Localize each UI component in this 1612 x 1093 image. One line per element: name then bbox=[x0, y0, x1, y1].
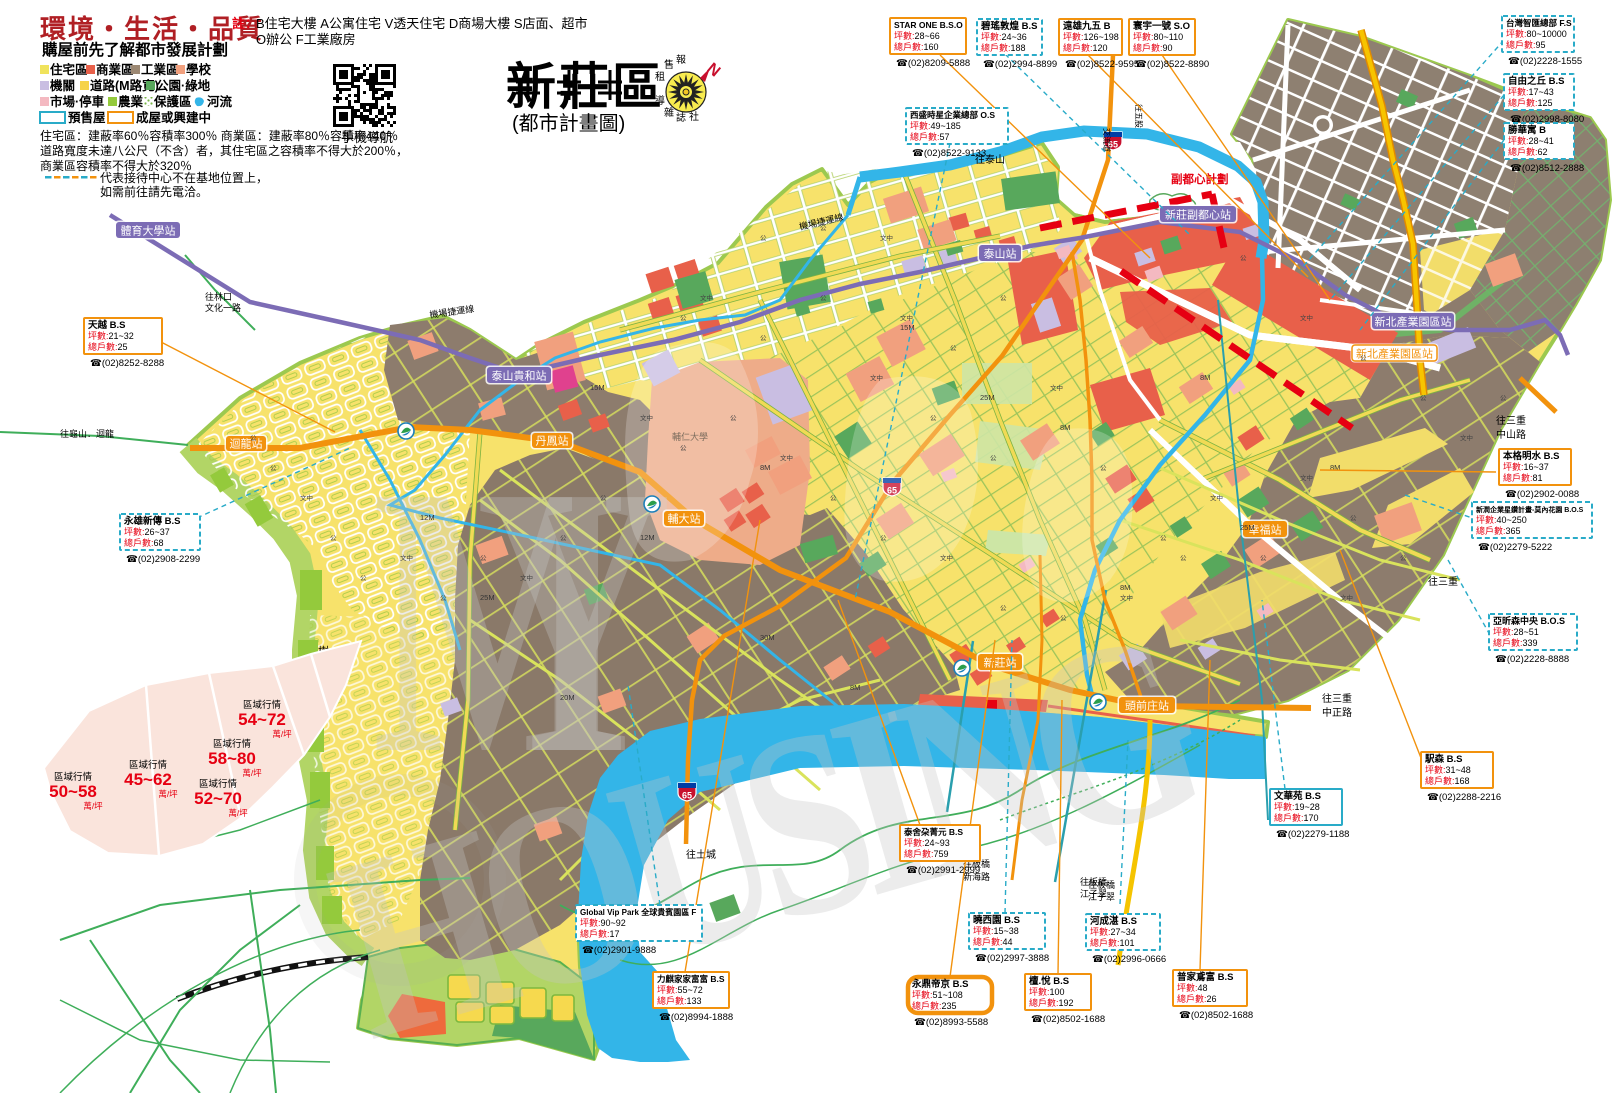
svg-text:25M: 25M bbox=[1240, 523, 1255, 532]
svg-text:萬/坪: 萬/坪 bbox=[242, 768, 262, 778]
svg-text:道路寬度未達八公尺（不含）者，其住宅區之容積率不得大於200: 道路寬度未達八公尺（不含）者，其住宅區之容積率不得大於200％， bbox=[40, 143, 408, 158]
svg-text:往三重: 往三重 bbox=[1322, 692, 1352, 705]
svg-text:公: 公 bbox=[1180, 555, 1187, 562]
svg-text:公: 公 bbox=[680, 445, 687, 452]
svg-text:文中: 文中 bbox=[1210, 493, 1223, 502]
svg-text:公: 公 bbox=[1240, 255, 1247, 262]
svg-text:公: 公 bbox=[1400, 555, 1407, 562]
svg-text:總戶數:125: 總戶數:125 bbox=[1508, 97, 1553, 108]
svg-text:總戶數:81: 總戶數:81 bbox=[1503, 472, 1543, 483]
svg-text:如需前往請先電洽。: 如需前往請先電洽。 bbox=[100, 184, 208, 199]
svg-text:公: 公 bbox=[360, 575, 367, 582]
svg-text:成屋或興建中: 成屋或興建中 bbox=[136, 110, 211, 125]
svg-text:☎(02)8522-9595: ☎(02)8522-9595 bbox=[1065, 59, 1139, 70]
svg-text:往板橋: 往板橋 bbox=[1088, 879, 1115, 890]
svg-text:文中: 文中 bbox=[1300, 313, 1313, 322]
svg-text:總戶數:133: 總戶數:133 bbox=[657, 995, 702, 1006]
svg-text:中山路: 中山路 bbox=[1496, 428, 1526, 441]
svg-text:8M: 8M bbox=[760, 463, 770, 472]
svg-text:☎(02)2908-2299: ☎(02)2908-2299 bbox=[126, 554, 200, 565]
svg-text:☎(02)8522-8890: ☎(02)8522-8890 bbox=[1135, 59, 1209, 70]
svg-text:文中: 文中 bbox=[700, 293, 713, 302]
svg-text:公: 公 bbox=[730, 415, 737, 422]
svg-text:坪數:16~37: 坪數:16~37 bbox=[1503, 461, 1549, 472]
svg-text:公: 公 bbox=[820, 225, 827, 232]
svg-text:8M: 8M bbox=[1200, 373, 1210, 382]
svg-text:總戶數:120: 總戶數:120 bbox=[1063, 42, 1108, 53]
svg-text:新莊區: 新莊區 bbox=[506, 59, 665, 115]
svg-text:總戶數:17: 總戶數:17 bbox=[580, 928, 620, 939]
svg-text:萬/坪: 萬/坪 bbox=[272, 729, 292, 739]
svg-text:寰宇一號 S.O: 寰宇一號 S.O bbox=[1132, 20, 1190, 32]
svg-text:新北產業園區站: 新北產業園區站 bbox=[1356, 347, 1433, 361]
svg-text:文中: 文中 bbox=[940, 553, 953, 562]
svg-text:☎(02)2288-2216: ☎(02)2288-2216 bbox=[1427, 792, 1501, 803]
svg-text:遠雄九五 B: 遠雄九五 B bbox=[1063, 20, 1111, 32]
svg-text:50~58: 50~58 bbox=[49, 782, 97, 801]
svg-text:公: 公 bbox=[1350, 515, 1357, 522]
svg-text:租: 租 bbox=[655, 70, 665, 83]
svg-text:公: 公 bbox=[1000, 605, 1007, 612]
svg-text:碧瑤敦煌 B.S: 碧瑤敦煌 B.S bbox=[980, 20, 1037, 32]
svg-text:公: 公 bbox=[1260, 555, 1267, 562]
svg-text:丹鳳站: 丹鳳站 bbox=[536, 434, 569, 448]
svg-text:輔大站: 輔大站 bbox=[668, 512, 701, 526]
svg-text:天越 B.S: 天越 B.S bbox=[88, 319, 125, 331]
svg-text:文中: 文中 bbox=[300, 493, 313, 502]
svg-text:☎(02)2901-9888: ☎(02)2901-9888 bbox=[582, 945, 656, 956]
svg-text:坪數:24~93: 坪數:24~93 bbox=[904, 837, 950, 848]
svg-text:文中: 文中 bbox=[520, 573, 533, 582]
svg-text:Global Vip Park 全球貴賓園區 F: Global Vip Park 全球貴賓園區 F bbox=[580, 907, 696, 917]
svg-text:總戶數:68: 總戶數:68 bbox=[124, 537, 164, 548]
svg-text:註：: 註： bbox=[232, 16, 258, 31]
svg-text:8M: 8M bbox=[850, 683, 860, 692]
svg-text:駅森 B.S: 駅森 B.S bbox=[1425, 753, 1462, 765]
svg-text:文中: 文中 bbox=[1120, 593, 1133, 602]
svg-text:15M: 15M bbox=[590, 383, 605, 392]
svg-text:文中: 文中 bbox=[400, 553, 413, 562]
svg-text:總戶數:25: 總戶數:25 bbox=[88, 341, 128, 352]
svg-text:導: 導 bbox=[655, 94, 665, 107]
svg-text:坪數:28~66: 坪數:28~66 bbox=[894, 30, 940, 41]
svg-text:公: 公 bbox=[480, 555, 487, 562]
svg-text:坪數:28~51: 坪數:28~51 bbox=[1493, 626, 1539, 637]
svg-text:☎(02)2994-8899: ☎(02)2994-8899 bbox=[983, 59, 1057, 70]
svg-text:往土城: 往土城 bbox=[686, 848, 716, 861]
svg-text:☎(02)8502-1688: ☎(02)8502-1688 bbox=[1031, 1014, 1105, 1025]
svg-text:報: 報 bbox=[676, 54, 686, 66]
svg-text:☎(02)2279-1188: ☎(02)2279-1188 bbox=[1276, 829, 1349, 840]
svg-text:坪數:48: 坪數:48 bbox=[1177, 982, 1208, 993]
svg-text:公: 公 bbox=[1060, 615, 1067, 622]
svg-text:售: 售 bbox=[664, 58, 674, 71]
svg-text:文中: 文中 bbox=[900, 313, 913, 322]
svg-text:泰山貴和站: 泰山貴和站 bbox=[492, 369, 547, 383]
svg-text:保護區: 保護區 bbox=[153, 94, 192, 109]
svg-text:工業區: 工業區 bbox=[141, 62, 179, 77]
svg-text:西盛時星企業總部 O.S: 西盛時星企業總部 O.S bbox=[910, 110, 995, 120]
svg-text:坪數:100: 坪數:100 bbox=[1029, 986, 1065, 997]
svg-text:坪數:24~36: 坪數:24~36 bbox=[981, 31, 1027, 42]
svg-text:文化一路: 文化一路 bbox=[205, 302, 241, 313]
svg-text:坪數:80~10000: 坪數:80~10000 bbox=[1506, 28, 1567, 39]
svg-text:公: 公 bbox=[1420, 395, 1427, 402]
svg-text:45~62: 45~62 bbox=[124, 770, 172, 789]
svg-text:雜: 雜 bbox=[664, 106, 674, 119]
svg-text:12M: 12M bbox=[420, 513, 435, 522]
svg-text:公: 公 bbox=[270, 465, 277, 472]
svg-text:公: 公 bbox=[990, 455, 997, 462]
svg-text:公: 公 bbox=[1160, 535, 1167, 542]
svg-text:文中: 文中 bbox=[870, 373, 883, 382]
svg-text:永鼎帝京 B.S: 永鼎帝京 B.S bbox=[911, 978, 968, 990]
svg-text:學校: 學校 bbox=[186, 62, 212, 77]
svg-text:8M: 8M bbox=[1120, 583, 1130, 592]
svg-text:☎(02)8252-8288: ☎(02)8252-8288 bbox=[90, 358, 164, 369]
svg-text:預售屋: 預售屋 bbox=[68, 110, 106, 125]
svg-text:總戶數:170: 總戶數:170 bbox=[1274, 812, 1319, 823]
svg-text:坪數:19~28: 坪數:19~28 bbox=[1274, 801, 1320, 812]
svg-text:總戶數:101: 總戶數:101 bbox=[1090, 937, 1135, 948]
svg-text:☎(02)2902-0088: ☎(02)2902-0088 bbox=[1505, 489, 1579, 500]
svg-text:永雄新傳 B.S: 永雄新傳 B.S bbox=[123, 515, 180, 527]
svg-text:☎(02)8502-1688: ☎(02)8502-1688 bbox=[1179, 1010, 1253, 1021]
svg-text:坪數:27~34: 坪數:27~34 bbox=[1090, 926, 1136, 937]
svg-text:購屋前先了解都市發展計劃: 購屋前先了解都市發展計劃 bbox=[41, 40, 228, 59]
svg-text:25M: 25M bbox=[480, 593, 495, 602]
svg-text:公: 公 bbox=[1000, 295, 1007, 302]
svg-text:檀.悅 B.S: 檀.悅 B.S bbox=[1029, 975, 1069, 987]
svg-text:機關: 機關 bbox=[50, 78, 75, 93]
svg-text:總戶數:95: 總戶數:95 bbox=[1506, 39, 1546, 50]
svg-text:☎(02)8993-5588: ☎(02)8993-5588 bbox=[914, 1017, 988, 1028]
svg-text:江子翠: 江子翠 bbox=[1088, 892, 1115, 902]
svg-text:總戶數:235: 總戶數:235 bbox=[912, 1000, 957, 1011]
svg-text:B住宅大樓 A公寓住宅 V透天住宅 D商場大樓 S店面、超市: B住宅大樓 A公寓住宅 V透天住宅 D商場大樓 S店面、超市 bbox=[256, 16, 588, 31]
svg-text:力麒家家富富 B.S: 力麒家家富富 B.S bbox=[657, 974, 725, 984]
svg-text:☎(02)8994-1888: ☎(02)8994-1888 bbox=[659, 1012, 733, 1023]
svg-text:☎(02)8512-2888: ☎(02)8512-2888 bbox=[1510, 163, 1584, 174]
svg-text:總戶數:160: 總戶數:160 bbox=[894, 41, 939, 52]
svg-text:坪數:21~32: 坪數:21~32 bbox=[88, 330, 134, 341]
svg-text:公: 公 bbox=[1500, 395, 1507, 402]
svg-text:總戶數:168: 總戶數:168 bbox=[1425, 775, 1470, 786]
svg-text:往五股: 往五股 bbox=[1134, 104, 1144, 128]
svg-text:社: 社 bbox=[689, 110, 699, 123]
svg-text:文中: 文中 bbox=[640, 413, 653, 422]
svg-text:☎(02)2991-2999: ☎(02)2991-2999 bbox=[906, 865, 980, 876]
svg-text:總戶數:188: 總戶數:188 bbox=[981, 42, 1026, 53]
svg-text:公: 公 bbox=[950, 345, 957, 352]
svg-text:☎(02)8522-9133: ☎(02)8522-9133 bbox=[912, 148, 986, 159]
svg-text:台灣智匯總部 F.S: 台灣智匯總部 F.S bbox=[1506, 18, 1572, 28]
svg-text:文中: 文中 bbox=[1340, 593, 1353, 602]
svg-text:誌: 誌 bbox=[676, 111, 686, 124]
svg-text:萬/坪: 萬/坪 bbox=[228, 808, 248, 818]
svg-text:總戶數:339: 總戶數:339 bbox=[1493, 637, 1538, 648]
svg-text:8M: 8M bbox=[1060, 423, 1070, 432]
svg-text:☎(02)2996-0666: ☎(02)2996-0666 bbox=[1092, 954, 1166, 965]
svg-text:勝華寓 B: 勝華寓 B bbox=[1508, 124, 1546, 136]
svg-text:副都心計劃: 副都心計劃 bbox=[1171, 172, 1229, 186]
svg-text:泰山站: 泰山站 bbox=[984, 247, 1017, 261]
svg-text:坪數:80~110: 坪數:80~110 bbox=[1133, 31, 1183, 42]
svg-text:(都市計畫圖): (都市計畫圖) bbox=[512, 112, 625, 135]
svg-text:12M: 12M bbox=[640, 533, 655, 542]
svg-text:泰舍朶菁元 B.S: 泰舍朶菁元 B.S bbox=[903, 827, 963, 837]
svg-text:文中: 文中 bbox=[780, 453, 793, 462]
svg-text:代表接待中心不在基地位置上，: 代表接待中心不在基地位置上， bbox=[100, 170, 268, 185]
svg-text:農業: 農業 bbox=[118, 94, 144, 109]
svg-text:往林口: 往林口 bbox=[205, 291, 232, 302]
svg-text:交流道: 交流道 bbox=[1102, 128, 1112, 152]
svg-text:坪數:126~198: 坪數:126~198 bbox=[1063, 31, 1119, 42]
svg-text:總戶數:62: 總戶數:62 bbox=[1508, 146, 1548, 157]
svg-text:坪數:15~38: 坪數:15~38 bbox=[973, 925, 1019, 936]
svg-text:體育大學站: 體育大學站 bbox=[121, 224, 176, 238]
svg-text:☎(02)2279-5222: ☎(02)2279-5222 bbox=[1478, 542, 1552, 553]
svg-text:萬/坪: 萬/坪 bbox=[158, 789, 178, 799]
svg-text:本格明水 B.S: 本格明水 B.S bbox=[1503, 450, 1559, 462]
svg-text:☎(02)2997-3888: ☎(02)2997-3888 bbox=[975, 953, 1049, 964]
svg-text:住宅區: 住宅區 bbox=[50, 62, 88, 77]
svg-text:公: 公 bbox=[330, 535, 337, 542]
svg-text:亞昕森中央 B.O.S: 亞昕森中央 B.O.S bbox=[1493, 615, 1565, 626]
svg-text:☎(02)2228-8888: ☎(02)2228-8888 bbox=[1495, 654, 1569, 665]
svg-text:公: 公 bbox=[830, 495, 837, 502]
svg-text:公: 公 bbox=[680, 315, 687, 322]
svg-text:總戶數:90: 總戶數:90 bbox=[1133, 42, 1173, 53]
svg-text:坪數:90~92: 坪數:90~92 bbox=[580, 917, 626, 928]
svg-text:52~70: 52~70 bbox=[194, 789, 242, 808]
svg-text:坪數:49~185: 坪數:49~185 bbox=[910, 120, 961, 131]
svg-text:公: 公 bbox=[880, 535, 887, 542]
svg-text:20M: 20M bbox=[560, 693, 575, 702]
svg-text:新北產業園區站: 新北產業園區站 bbox=[1375, 315, 1452, 329]
svg-text:公園·綠地: 公園·綠地 bbox=[156, 78, 211, 93]
svg-text:萬/坪: 萬/坪 bbox=[83, 801, 103, 811]
svg-text:曉西園 B.S: 曉西園 B.S bbox=[973, 914, 1020, 926]
svg-text:新潤企業星鑽計畫-莫內花園 B.O.S: 新潤企業星鑽計畫-莫內花園 B.O.S bbox=[1476, 505, 1584, 514]
svg-text:公: 公 bbox=[930, 415, 937, 422]
svg-text:25M: 25M bbox=[980, 393, 995, 402]
svg-text:O辦公 F工業廠房: O辦公 F工業廠房 bbox=[256, 32, 356, 47]
svg-text:坪數:26~37: 坪數:26~37 bbox=[124, 526, 170, 537]
svg-text:文華苑 B.S: 文華苑 B.S bbox=[1273, 790, 1321, 802]
svg-text:公: 公 bbox=[1100, 465, 1107, 472]
svg-text:58~80: 58~80 bbox=[208, 749, 256, 768]
svg-text:迴龍站: 迴龍站 bbox=[230, 437, 263, 451]
svg-text:公: 公 bbox=[820, 295, 827, 302]
svg-text:市場·停車: 市場·停車 bbox=[50, 94, 105, 109]
svg-text:河流: 河流 bbox=[207, 94, 233, 109]
svg-text:總戶數:44: 總戶數:44 bbox=[973, 936, 1013, 947]
svg-text:文中: 文中 bbox=[1300, 473, 1313, 482]
svg-text:公: 公 bbox=[440, 595, 447, 602]
svg-text:☎(02)2228-1555: ☎(02)2228-1555 bbox=[1508, 56, 1582, 67]
svg-text:54~72: 54~72 bbox=[238, 710, 286, 729]
svg-text:頭前庄站: 頭前庄站 bbox=[1125, 699, 1169, 713]
svg-text:文中: 文中 bbox=[880, 233, 893, 242]
svg-text:公: 公 bbox=[250, 435, 257, 442]
svg-text:總戶數:57: 總戶數:57 bbox=[910, 131, 950, 142]
svg-text:文中: 文中 bbox=[1050, 383, 1063, 392]
svg-text:環境・生活・品質: 環境・生活・品質 bbox=[40, 14, 264, 44]
svg-text:文中: 文中 bbox=[1460, 433, 1473, 442]
svg-text:往三重: 往三重 bbox=[1496, 414, 1526, 427]
svg-text:公: 公 bbox=[1360, 355, 1367, 362]
svg-text:坪數:17~43: 坪數:17~43 bbox=[1508, 86, 1554, 97]
svg-text:總戶數:759: 總戶數:759 bbox=[904, 848, 949, 859]
svg-text:STAR ONE B.S.O: STAR ONE B.S.O bbox=[894, 20, 963, 30]
svg-text:坪數:55~72: 坪數:55~72 bbox=[657, 984, 703, 995]
svg-text:坪數:31~48: 坪數:31~48 bbox=[1425, 764, 1471, 775]
svg-text:公: 公 bbox=[760, 235, 767, 242]
svg-text:往三重: 往三重 bbox=[1428, 575, 1458, 588]
svg-text:坪數:40~250: 坪數:40~250 bbox=[1476, 514, 1527, 525]
svg-text:總戶數:26: 總戶數:26 bbox=[1177, 993, 1217, 1004]
svg-text:公: 公 bbox=[560, 535, 567, 542]
svg-text:普家鳶富 B.S: 普家鳶富 B.S bbox=[1177, 971, 1233, 983]
svg-text:中正路: 中正路 bbox=[1322, 706, 1352, 719]
svg-text:往龜山．迴龍: 往龜山．迴龍 bbox=[60, 428, 114, 439]
svg-text:30M: 30M bbox=[760, 633, 775, 642]
svg-text:河成湛 B.S: 河成湛 B.S bbox=[1090, 915, 1137, 927]
svg-text:商業區: 商業區 bbox=[96, 62, 134, 77]
svg-text:總戶數:192: 總戶數:192 bbox=[1029, 997, 1074, 1008]
svg-text:公: 公 bbox=[600, 495, 607, 502]
svg-text:總戶數:365: 總戶數:365 bbox=[1476, 525, 1521, 536]
svg-text:15M: 15M bbox=[900, 323, 915, 332]
svg-text:手機導航: 手機導航 bbox=[341, 130, 393, 145]
svg-text:☎(02)8209-5888: ☎(02)8209-5888 bbox=[896, 58, 970, 69]
svg-text:坪數:28~41: 坪數:28~41 bbox=[1508, 135, 1554, 146]
svg-text:自由之丘 B.S: 自由之丘 B.S bbox=[1508, 75, 1564, 87]
svg-text:坪數:51~108: 坪數:51~108 bbox=[912, 989, 963, 1000]
svg-text:公: 公 bbox=[760, 335, 767, 342]
